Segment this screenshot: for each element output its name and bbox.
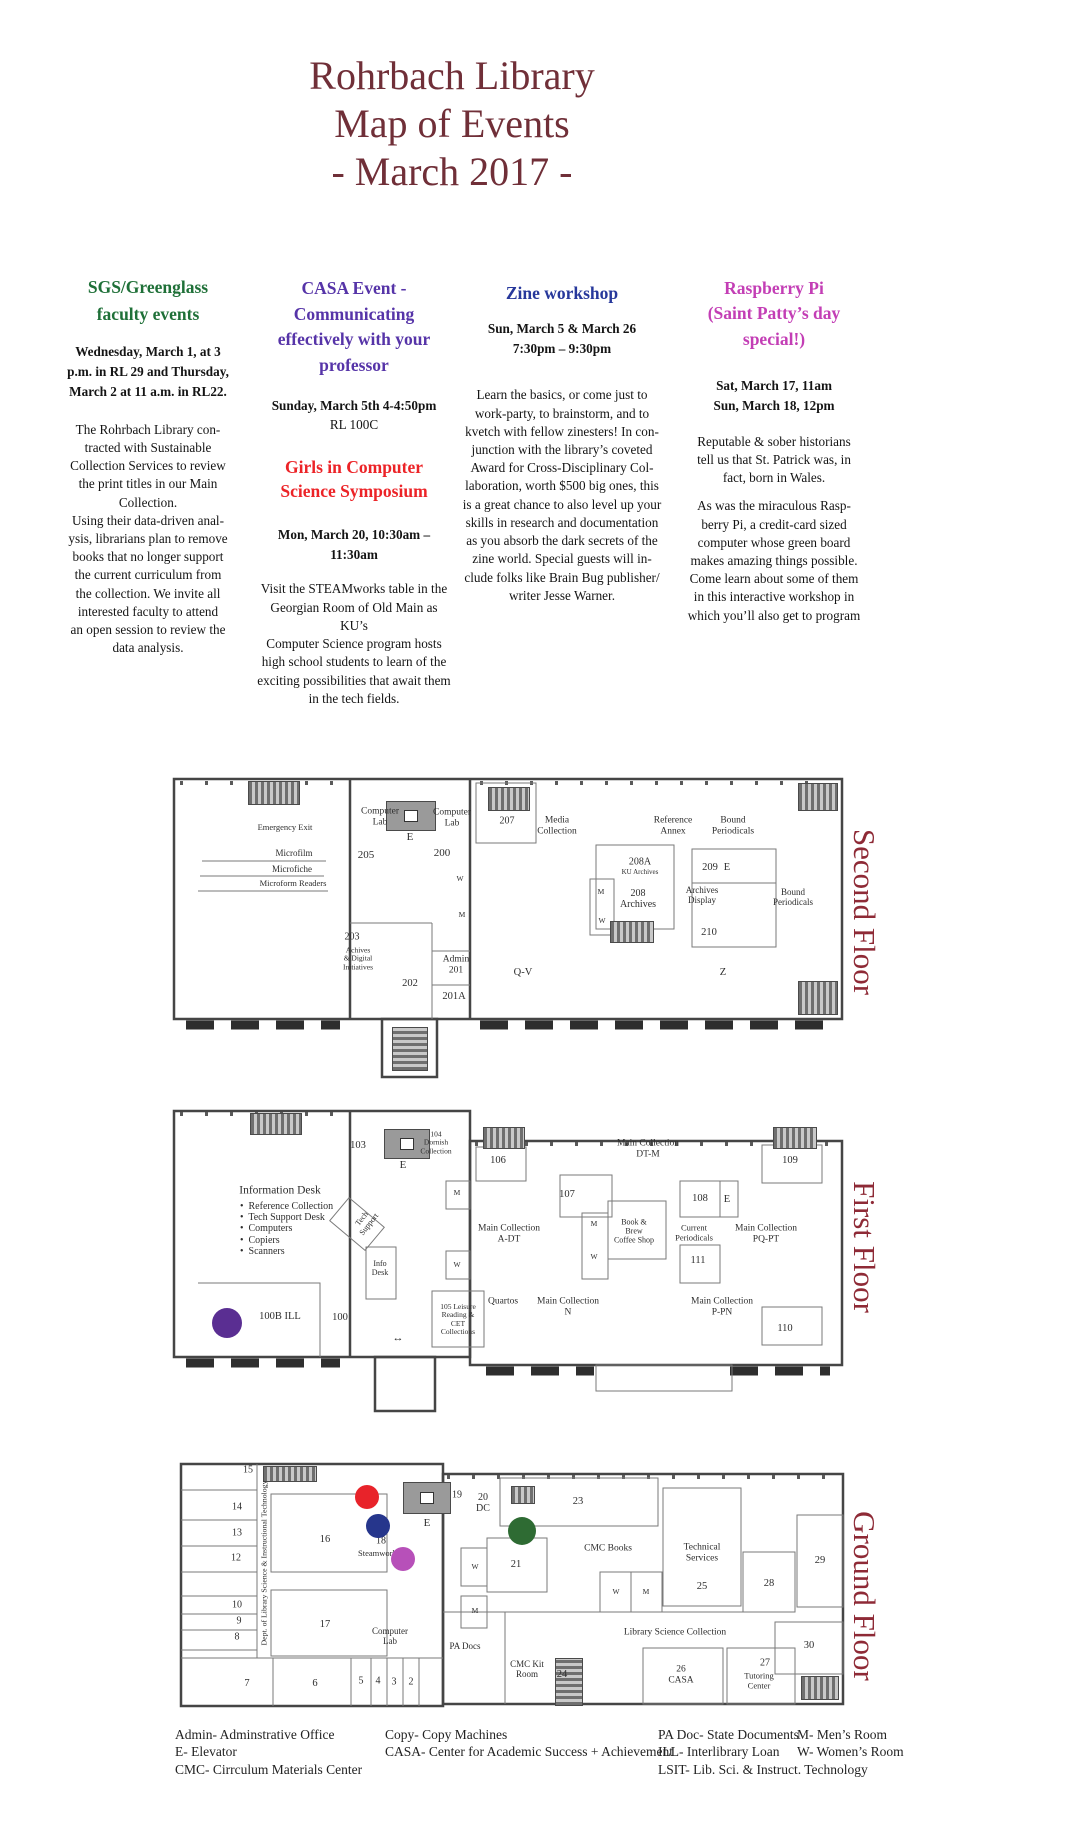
room-label: W (590, 1253, 597, 1261)
room-label: E (724, 1194, 730, 1206)
room-label: 14 (232, 1501, 242, 1512)
room-label: M (472, 1607, 479, 1615)
room-label: 23 (573, 1496, 584, 1508)
room-label: Quartos (488, 1297, 518, 1308)
event-body2-raspberry: As was the miraculous Rasp- berry Pi, a … (670, 497, 878, 625)
room-label: E (424, 1517, 431, 1529)
room-label: Main Collection DT-M (617, 1138, 679, 1159)
room-label: 30 (804, 1640, 815, 1652)
ground-floor-labels: 1514131216109817765432Dept. of Library S… (175, 1460, 855, 1710)
room-label: 6 (312, 1678, 317, 1690)
legend-abbreviations-4: M- Men’s Room W- Women’s Room (797, 1726, 904, 1761)
room-label: 27 (760, 1657, 770, 1668)
event-when-sgs: Wednesday, March 1, at 3 p.m. in RL 29 a… (60, 342, 236, 401)
event-when-zine: Sun, March 5 & March 26 7:30pm – 9:30pm (462, 319, 662, 359)
room-label: Library Science Collection (624, 1628, 726, 1639)
room-label: Bound Periodicals (712, 815, 754, 836)
event-heading-zine: Zine workshop (462, 281, 662, 307)
event-body-sgs: The Rohrbach Library con- tracted with S… (60, 421, 236, 658)
room-label: 17 (320, 1619, 331, 1631)
event-when-raspberry: Sat, March 17, 11am Sun, March 18, 12pm (670, 376, 878, 416)
room-label: 207 (500, 815, 515, 826)
room-label: 29 (815, 1555, 826, 1567)
first-floor-labels: 103E104 Dornish CollectionInformation De… (170, 1105, 850, 1415)
room-label: Technical Services (684, 1542, 721, 1563)
event-room-casa: RL 100C (256, 416, 452, 433)
room-label: Book & Brew Coffee Shop (614, 1219, 654, 1246)
room-label: 13 (232, 1527, 242, 1538)
event-when-casa: Sunday, March 5th 4-4:50pm (256, 396, 452, 416)
room-label: 208 Archives (620, 888, 656, 910)
room-label: ↔ (393, 1332, 404, 1344)
event-location-marker (366, 1514, 390, 1538)
room-label: Tutoring Center (744, 1671, 773, 1690)
second-floor-label: Second Floor (846, 829, 882, 995)
room-label: 209 (702, 862, 718, 874)
room-label: Computer Lab (372, 1626, 408, 1646)
room-label: 106 (490, 1155, 506, 1167)
room-label: Main Collection P-PN (691, 1296, 753, 1317)
room-label: PA Docs (450, 1641, 481, 1651)
room-label: • Reference Collection • Tech Support De… (240, 1201, 333, 1257)
room-label: Main Collection A-DT (478, 1223, 540, 1244)
room-label: Emergency Exit (258, 823, 313, 833)
room-label: Dept. of Library Science & Instructional… (261, 1481, 270, 1646)
event-heading-raspberry: Raspberry Pi (Saint Patty’s day special!… (670, 276, 878, 352)
room-label: Bound Periodicals (773, 887, 813, 907)
room-label: 3 (392, 1676, 397, 1687)
room-label: Computer Lab (361, 806, 399, 827)
room-label: Reference Annex (654, 815, 693, 836)
room-label: Q-V (514, 967, 533, 979)
event-when-girls: Mon, March 20, 10:30am – 11:30am (256, 525, 452, 565)
room-label: E (400, 1159, 407, 1171)
room-label: 201A (442, 991, 465, 1003)
legend-abbreviations-1: Admin- Adminstrative Office E- Elevator … (175, 1726, 362, 1778)
room-label: M (591, 1220, 598, 1228)
room-label: W (598, 917, 605, 925)
room-label: 109 (782, 1155, 798, 1167)
ground-floor-label: Ground Floor (846, 1511, 882, 1681)
first-floor-plan: 103E104 Dornish CollectionInformation De… (170, 1105, 850, 1415)
room-label: KU Archives (622, 869, 659, 877)
event-heading-casa: CASA Event - Communicating effectively w… (256, 276, 452, 379)
room-label: 4 (376, 1675, 381, 1686)
room-label: Computer Lab (433, 807, 471, 828)
room-label: 25 (697, 1581, 708, 1593)
room-label: Microform Readers (260, 879, 327, 889)
room-label: 28 (764, 1578, 775, 1590)
room-label: CMC Books (584, 1544, 632, 1555)
room-label: 208A (629, 856, 651, 867)
room-label: E (407, 831, 414, 843)
room-label: 107 (559, 1189, 575, 1201)
room-label: Microfiche (272, 864, 312, 874)
room-label: W (471, 1563, 478, 1571)
room-label: 202 (402, 978, 418, 990)
room-label: Info Desk (372, 1260, 388, 1278)
event-body-girls: Visit the STEAMworks table in the Georgi… (256, 580, 452, 708)
room-label: 19 (452, 1489, 462, 1500)
room-label: Main Collection PQ-PT (735, 1223, 797, 1244)
event-location-marker (355, 1485, 379, 1509)
room-label: 26 CASA (668, 1664, 693, 1685)
room-label: 2 (409, 1676, 414, 1687)
room-label: W (612, 1588, 619, 1596)
event-column-zine: Zine workshop Sun, March 5 & March 26 7:… (462, 281, 662, 605)
room-label: CMC Kit Room (510, 1659, 544, 1679)
event-column-casa: CASA Event - Communicating effectively w… (256, 276, 452, 708)
room-label: Achives & Digital Initiatives (343, 946, 373, 971)
room-label: M (643, 1588, 650, 1596)
first-floor-label: First Floor (846, 1181, 882, 1313)
room-label: M (454, 1189, 461, 1197)
event-location-marker (212, 1308, 242, 1338)
event-body1-raspberry: Reputable & sober historians tell us tha… (670, 433, 878, 488)
room-label: 16 (320, 1534, 331, 1546)
room-label: 100B ILL (259, 1311, 301, 1323)
room-label: Archives Display (686, 885, 719, 905)
event-heading-sgs: SGS/Greenglass faculty events (60, 274, 236, 328)
room-label: W (453, 1261, 460, 1269)
room-label: E (724, 862, 730, 874)
room-label: 7 (244, 1678, 249, 1690)
room-label: 24 (557, 1669, 568, 1681)
room-label: 200 (434, 847, 451, 859)
second-floor-plan: Emergency ExitMicrofilmMicroficheMicrofo… (170, 775, 850, 1080)
room-label: Current Periodicals (675, 1223, 713, 1242)
room-label: 108 (692, 1193, 708, 1205)
room-label: 12 (231, 1552, 241, 1563)
event-location-marker (391, 1547, 415, 1571)
event-location-marker (508, 1517, 536, 1545)
room-label: 5 (359, 1675, 364, 1686)
room-label: Information Desk (239, 1185, 320, 1198)
room-label: 203 (345, 931, 360, 942)
room-label: 10 (232, 1599, 242, 1610)
event-column-raspberry: Raspberry Pi (Saint Patty’s day special!… (670, 276, 878, 625)
room-label: 105 Leisure Reading & CET Collections (440, 1303, 476, 1337)
room-label: 100 (332, 1312, 348, 1324)
room-label: 205 (358, 849, 375, 861)
room-label: W (456, 875, 463, 883)
room-label: 103 (350, 1140, 366, 1152)
room-label: Z (720, 967, 726, 979)
room-label: 20 DC (476, 1492, 490, 1514)
ground-floor-plan: 1514131216109817765432Dept. of Library S… (175, 1460, 855, 1710)
room-label: 9 (237, 1615, 242, 1626)
event-column-sgs: SGS/Greenglass faculty events Wednesday,… (60, 274, 236, 657)
room-label: 15 (243, 1464, 253, 1475)
room-label: M (459, 911, 466, 919)
room-label: Admin 201 (443, 954, 469, 975)
room-label: M (598, 888, 605, 896)
room-label: Main Collection N (537, 1296, 599, 1317)
room-label: Microfilm (276, 848, 313, 858)
room-label: 111 (691, 1255, 706, 1267)
poster-page: Rohrbach Library Map of Events - March 2… (0, 0, 1068, 1830)
room-label: 8 (235, 1631, 240, 1642)
room-label: Media Collection (537, 815, 577, 836)
room-label: 104 Dornish Collection (420, 1130, 451, 1155)
room-label: 110 (777, 1323, 792, 1335)
event-heading-girls: Girls in Computer Science Symposium (256, 455, 452, 504)
room-label: 210 (701, 927, 717, 939)
second-floor-labels: Emergency ExitMicrofilmMicroficheMicrofo… (170, 775, 850, 1080)
event-body-zine: Learn the basics, or come just to work-p… (462, 386, 662, 605)
room-label: 21 (511, 1559, 522, 1571)
poster-title: Rohrbach Library Map of Events - March 2… (132, 52, 772, 196)
legend-abbreviations-2: Copy- Copy Machines CASA- Center for Aca… (385, 1726, 673, 1761)
room-label: Tech Support (351, 1207, 381, 1238)
